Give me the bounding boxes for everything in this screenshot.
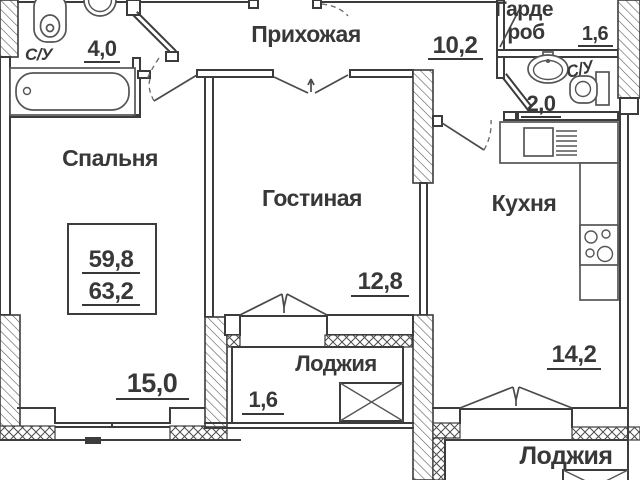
area-living: 12,8 [358, 268, 403, 295]
bedroom-window [55, 423, 170, 427]
entrance-door-swing [322, 4, 348, 16]
kitchen-balcony-door [460, 387, 572, 408]
floor-plan-screenshot: Прихожая 10,2 С/У 4,0 Спальня 15,0 59,8 … [0, 0, 640, 480]
total-area-top: 59,8 [89, 246, 134, 273]
outer-wall-right [620, 114, 628, 408]
wall-pier [0, 0, 18, 57]
door-jamb [249, 0, 258, 8]
wall-pier [413, 315, 433, 480]
wall-bedroom-living [205, 77, 213, 317]
wall-stub [85, 437, 101, 444]
room-label-kitchen: Кухня [492, 190, 557, 216]
room-label-bedroom: Спальня [62, 145, 158, 171]
wall-crosshatch [227, 335, 240, 347]
bedroom-door [149, 75, 197, 101]
outer-wall-left [0, 57, 10, 315]
wall-crosshatch [572, 427, 640, 440]
toilet-icon [34, 0, 66, 42]
loggia-right-window [563, 470, 628, 480]
kitchen-sink-icon [524, 128, 553, 156]
area-kitchen: 14,2 [552, 341, 597, 368]
door-jamb [313, 0, 321, 8]
living-room-double-door [274, 75, 348, 93]
wall-crosshatch [0, 426, 55, 440]
room-label-bathroom-main: С/У [25, 45, 54, 64]
door-jamb [504, 112, 516, 120]
wall-shaft [620, 98, 638, 114]
area-loggia-center: 1,6 [248, 387, 277, 412]
stove-icon [580, 225, 618, 265]
wall-pier [413, 70, 433, 183]
wall-pier [0, 315, 20, 427]
area-wardrobe: 1,6 [582, 23, 609, 45]
floor-plan: Прихожая 10,2 С/У 4,0 Спальня 15,0 59,8 … [0, 0, 640, 480]
room-label-wardrobe-1: Гарде [495, 0, 553, 21]
room-label-wardrobe-2: роб [507, 21, 545, 44]
wall-crosshatch [325, 335, 412, 347]
living-balcony-door [240, 294, 327, 315]
area-bathroom-main: 4,0 [87, 36, 116, 61]
room-label-loggia-center: Лоджия [295, 351, 377, 376]
door-jamb [166, 52, 178, 61]
bathroom-door-swing [147, 58, 159, 79]
area-bedroom: 15,0 [127, 368, 178, 398]
wall-crosshatch [433, 438, 445, 480]
loggia-window [340, 383, 403, 421]
wall-crosshatch [433, 423, 460, 438]
bathtub-icon [10, 68, 135, 115]
wall-pier [618, 0, 640, 98]
total-area-box: 59,8 63,2 [68, 224, 156, 314]
kitchen-door [433, 116, 491, 150]
sink-icon [84, 0, 116, 16]
total-area-bottom: 63,2 [89, 278, 134, 305]
room-label-loggia-right: Лоджия [519, 442, 612, 470]
room-label-hallway: Прихожая [251, 21, 360, 47]
area-bathroom-small: 2,0 [526, 91, 555, 116]
wall-pier [205, 317, 227, 427]
area-hallway: 10,2 [433, 32, 478, 59]
room-label-living: Гостиная [262, 185, 362, 211]
